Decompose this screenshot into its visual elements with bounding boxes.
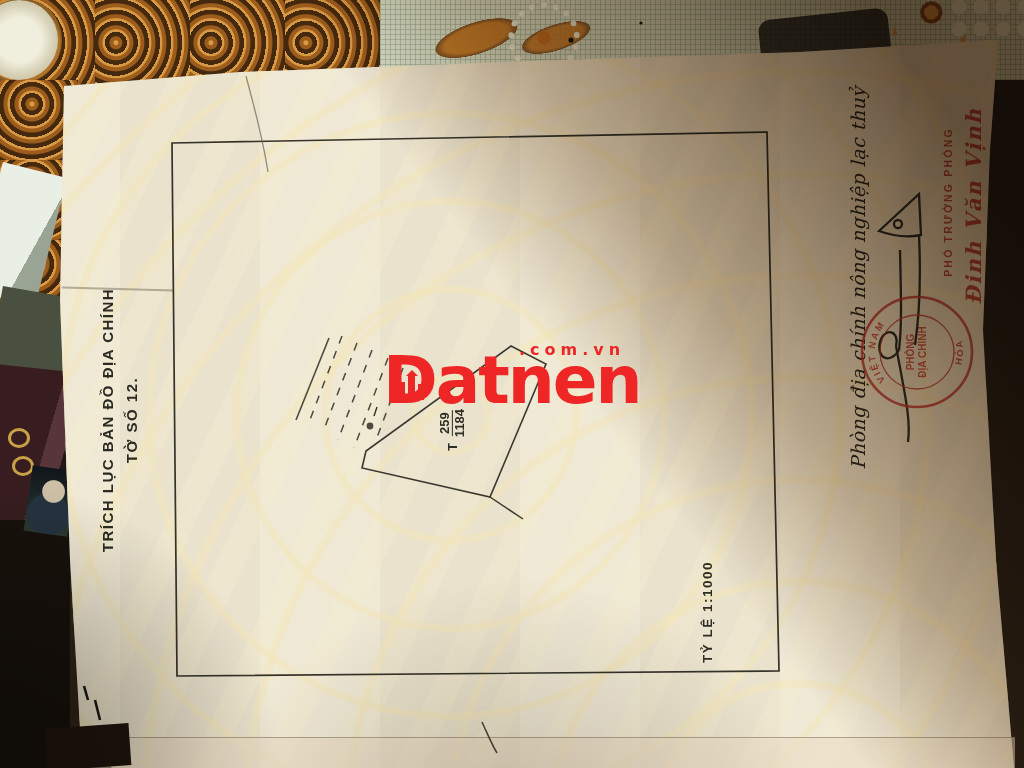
document-side-title: TRÍCH LỤC BẢN ĐỒ ĐỊA CHÍNH TỜ SỐ 12.: [96, 288, 144, 552]
fold-scratch: [482, 722, 497, 753]
survey-point-dot: [367, 423, 374, 430]
stamp-center-line1: PHÒNG: [904, 333, 916, 370]
stamp-ring-text-bottom: HÒA: [952, 338, 965, 366]
speck: [639, 21, 642, 24]
road-solid-edge: [296, 338, 329, 420]
speck: [568, 37, 573, 42]
svg-text:HÒA: HÒA: [952, 338, 965, 366]
boundary-extension: [490, 497, 523, 519]
edge-ink-marks: [84, 686, 100, 720]
svg-text:VIỆT NAM: VIỆT NAM: [866, 319, 887, 386]
side-title-line2: TỜ SỐ 12.: [120, 288, 144, 552]
photo-of-cadastral-document: TRÍCH LỤC BẢN ĐỒ ĐỊA CHÍNH TỜ SỐ 12. T 2…: [0, 0, 1024, 768]
stamp-center-line2: ĐỊA CHÍNH: [916, 326, 929, 377]
scale-label: TỶ LỆ 1:1000: [700, 561, 715, 663]
survey-point-tick: [374, 407, 377, 416]
parcel-prefix: T: [445, 443, 460, 451]
official-stamp: VIỆT NAM HÒA PHÒNG ĐỊA CHÍNH: [855, 290, 979, 414]
position-title-red: PHÓ TRƯỞNG PHÒNG: [942, 127, 954, 277]
pencil-stroke: [246, 76, 268, 172]
watermark-domain: .com.vn: [519, 340, 625, 359]
watermark-house-icon: [397, 368, 427, 404]
side-title-line1: TRÍCH LỤC BẢN ĐỒ ĐỊA CHÍNH: [96, 288, 120, 552]
signer-name-red: Đinh Văn Vịnh: [961, 107, 986, 304]
stamp-ring-text-top: VIỆT NAM: [866, 319, 887, 386]
